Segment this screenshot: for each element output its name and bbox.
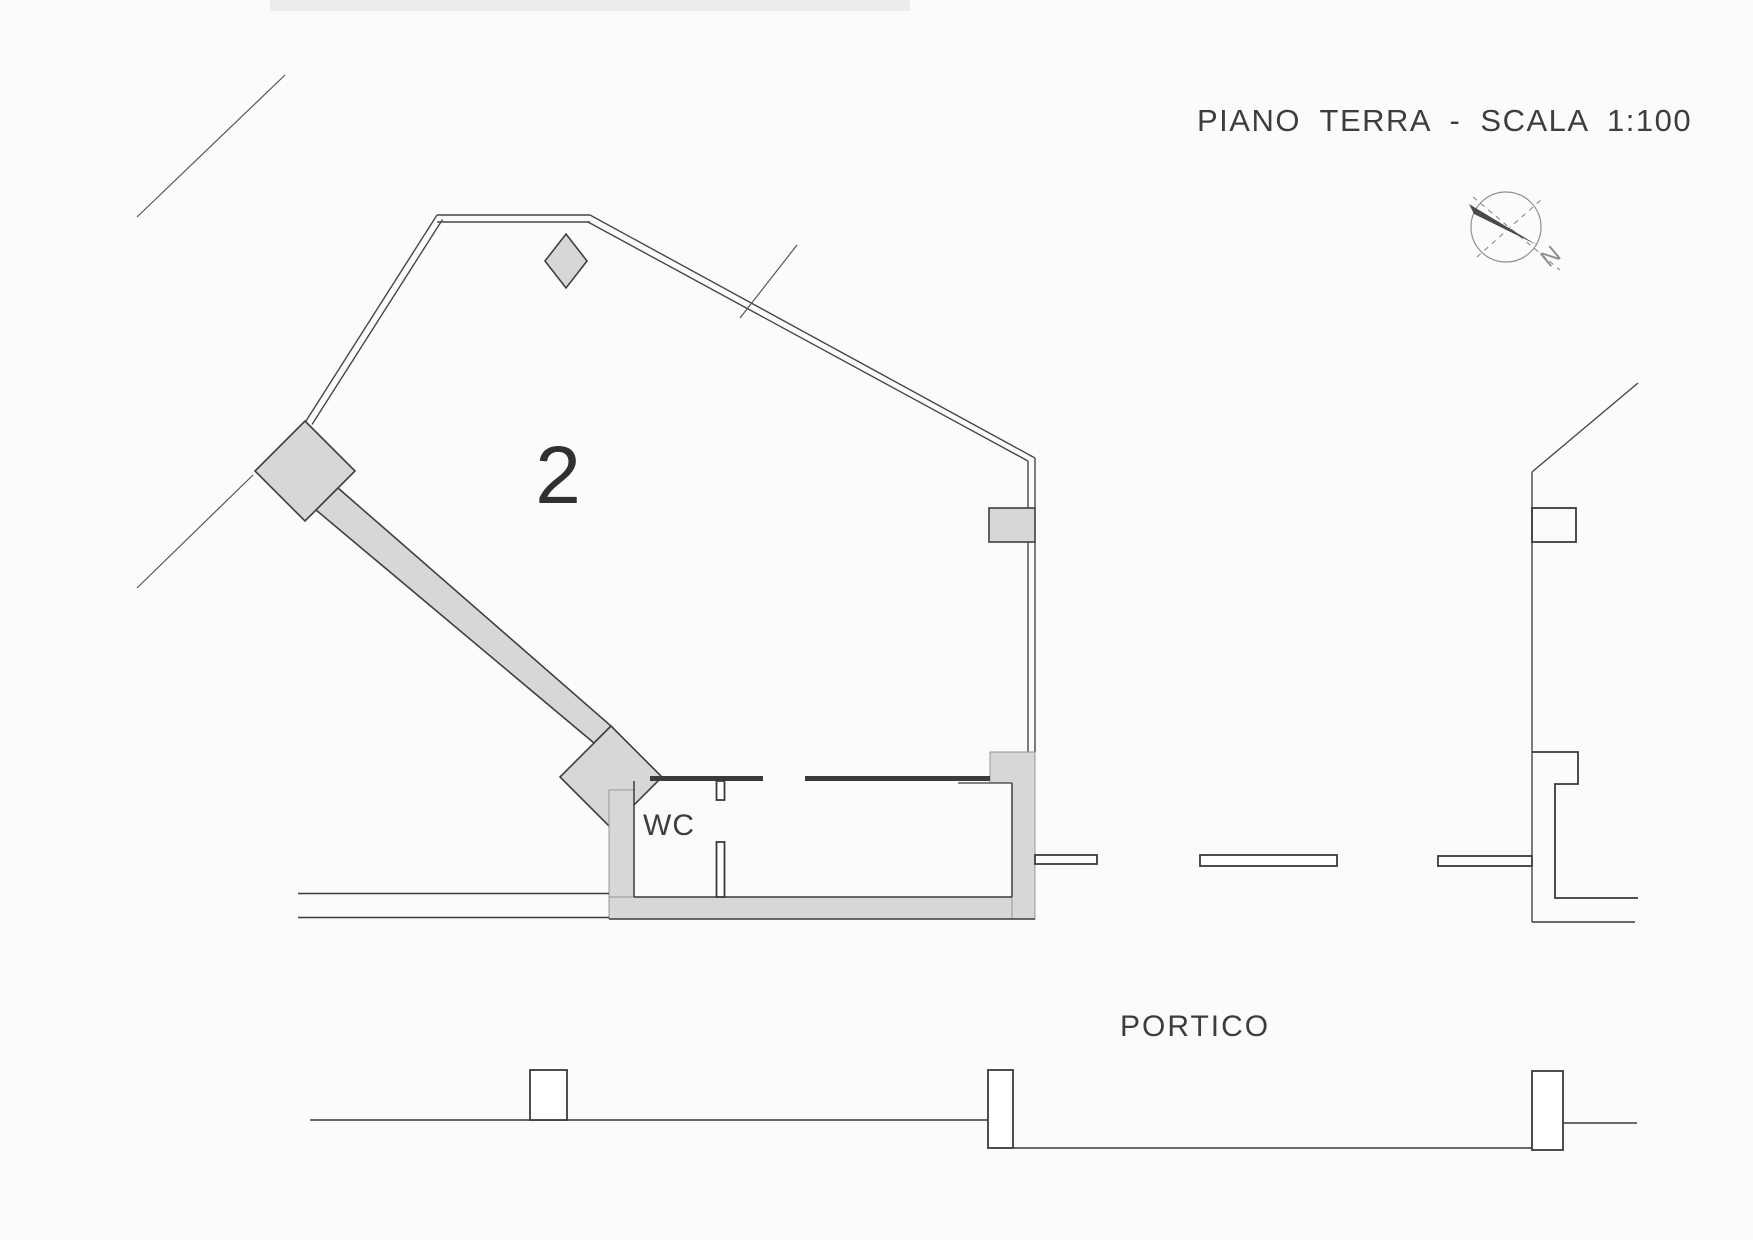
room-number-label: 2 [535,430,581,521]
pillar-main-room [989,508,1035,542]
threshold-bar-middle [1200,855,1337,866]
threshold-bar-left [1035,855,1097,864]
threshold-bar-right [1438,856,1532,866]
portico-pillar-2 [988,1070,1013,1148]
wc-label: WC [643,809,695,842]
floor-plan-drawing: N PIANO TERRA - SCALA 1:100 2 WC PORTICO [0,0,1753,1240]
paper-background [0,0,1753,1240]
wc-top-wall [650,776,763,781]
drawing-title: PIANO TERRA - SCALA 1:100 [1197,103,1692,138]
bottom-thick-wall [609,897,1035,919]
portico-label: PORTICO [1120,1010,1270,1043]
portico-pillar-3 [1532,1071,1563,1150]
portico-pillar-1 [530,1070,567,1120]
wc-partition-stub [717,781,725,800]
scanned-floor-plan-page: N PIANO TERRA - SCALA 1:100 2 WC PORTICO [0,0,1753,1240]
wc-partition-wall [717,842,725,897]
corridor-top-wall [805,776,990,781]
scan-streak [270,0,910,11]
